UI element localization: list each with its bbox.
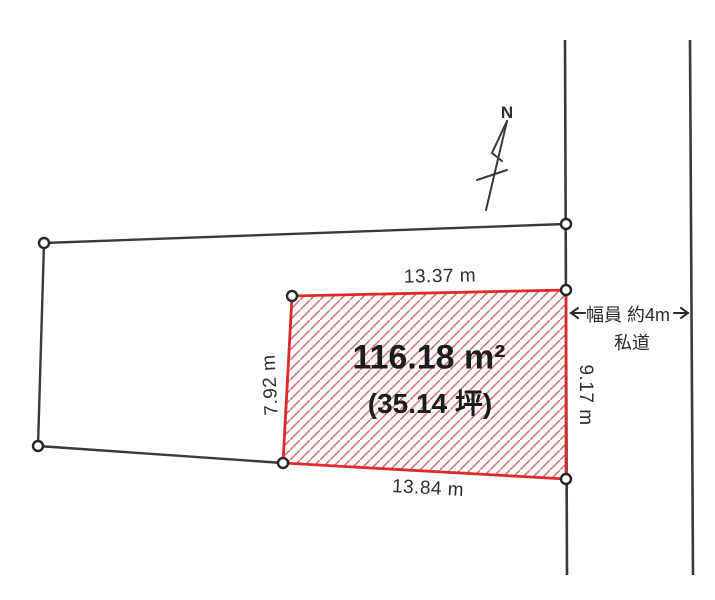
lot-area-label: 116.18 m² (352, 339, 505, 378)
corner-marker (561, 474, 571, 484)
dimension-right-label: 9.17 m (574, 364, 596, 425)
road-width-label: 幅員 約4m (586, 301, 670, 327)
corner-marker (278, 458, 288, 468)
corner-marker (33, 441, 43, 451)
road-width-left-arrow-icon (571, 308, 585, 318)
corner-marker (287, 291, 297, 301)
dimension-bottom-label: 13.84 m (391, 476, 464, 502)
survey-drawing-svg (0, 0, 715, 600)
road-width-right-arrow-icon (674, 308, 688, 318)
road-type-label: 私道 (614, 329, 650, 355)
corner-marker (39, 238, 49, 248)
north-arrow-icon (477, 121, 507, 210)
dimension-top-label: 13.37 m (404, 265, 477, 289)
corner-marker (561, 219, 571, 229)
compass-north-label: N (501, 103, 513, 123)
road-right-edge-line (690, 40, 693, 575)
corner-marker (561, 285, 571, 295)
dimension-left-label: 7.92 m (258, 354, 283, 416)
lot-area-tsubo-label: (35.14 坪) (368, 382, 493, 422)
land-plot-drawing: N 13.37 m 13.84 m 7.92 m 9.17 m 116.18 m… (0, 0, 715, 600)
